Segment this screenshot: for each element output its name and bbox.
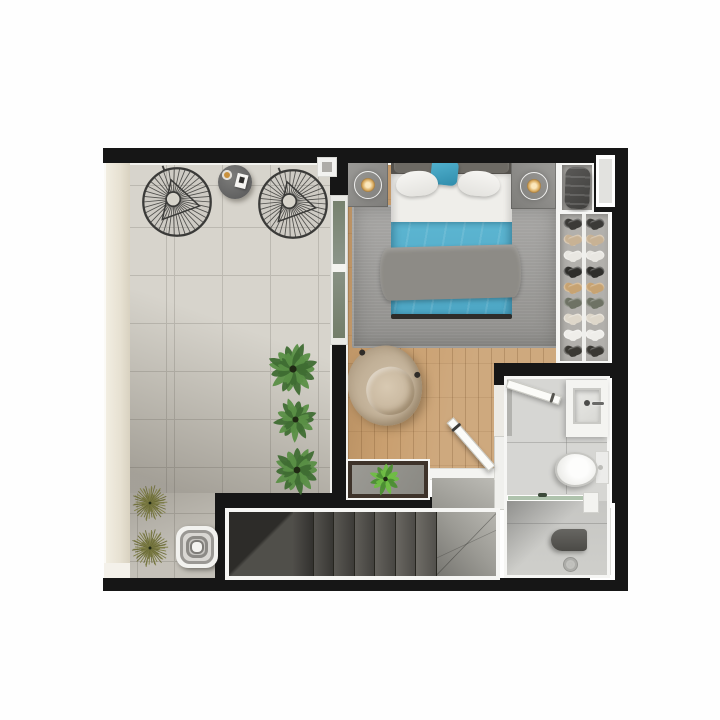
exterior-ledge-end [104, 563, 130, 578]
bed-foot-edge [391, 314, 512, 319]
wire-lounge-chair-right [255, 166, 331, 242]
door-handle [549, 392, 555, 402]
potted-plant-bushy [267, 394, 324, 445]
gray-throw-blanket [379, 244, 521, 301]
potted-plant-large [261, 339, 325, 399]
wicker-ottoman [176, 526, 218, 568]
shoe-rack [558, 212, 610, 363]
table-lamp-left [354, 171, 382, 199]
stair-treads [293, 512, 437, 576]
shower-tile-line [507, 523, 607, 524]
shower-wall-stub [584, 493, 598, 512]
faucet [592, 402, 604, 405]
sliding-door-rail [332, 264, 346, 272]
window-glass [599, 159, 612, 203]
sliding-door-glass-lower [333, 272, 345, 338]
lamp-glow [361, 178, 375, 192]
grass-plant-lower [129, 527, 171, 569]
coffee [224, 172, 230, 178]
shower-bench [551, 529, 587, 551]
grass-plant-upper [130, 483, 170, 523]
stair-tread [396, 512, 417, 576]
sink-basin [573, 388, 601, 424]
sliding-glass-door [331, 196, 347, 344]
table-lamp-right [520, 172, 548, 200]
stair-tread [375, 512, 396, 576]
notebook-mark [239, 177, 245, 184]
floor-plan [0, 0, 720, 720]
wire-lounge-chair-left [139, 164, 215, 240]
faucet-knob [584, 400, 590, 406]
console-plant [366, 460, 405, 498]
ottoman-center [192, 542, 202, 552]
flush-button [598, 465, 603, 470]
stair-tread [416, 512, 437, 576]
lamp-glow [527, 179, 541, 193]
door-handle [451, 423, 461, 432]
stair-tread [314, 512, 335, 576]
staircase [225, 508, 500, 580]
stair-tread [293, 512, 314, 576]
potted-plant-spiky [267, 442, 327, 498]
wall-top [103, 148, 628, 163]
window-top [596, 155, 615, 207]
duffel-bag [564, 167, 590, 210]
sliding-door-glass-upper [333, 201, 345, 264]
floor-drain [563, 557, 578, 572]
bathroom-tile-line-h [507, 442, 607, 443]
shoe-rack-rail [582, 214, 586, 361]
vanity-sink [566, 380, 608, 437]
exterior-ledge [104, 163, 132, 563]
stair-tread [334, 512, 355, 576]
stair-tread [355, 512, 376, 576]
winder-steps-right [437, 512, 496, 576]
winder-steps-left [229, 512, 293, 576]
partition-handle [538, 493, 547, 497]
upper-landing [432, 478, 494, 512]
coffee-cup [222, 170, 232, 180]
